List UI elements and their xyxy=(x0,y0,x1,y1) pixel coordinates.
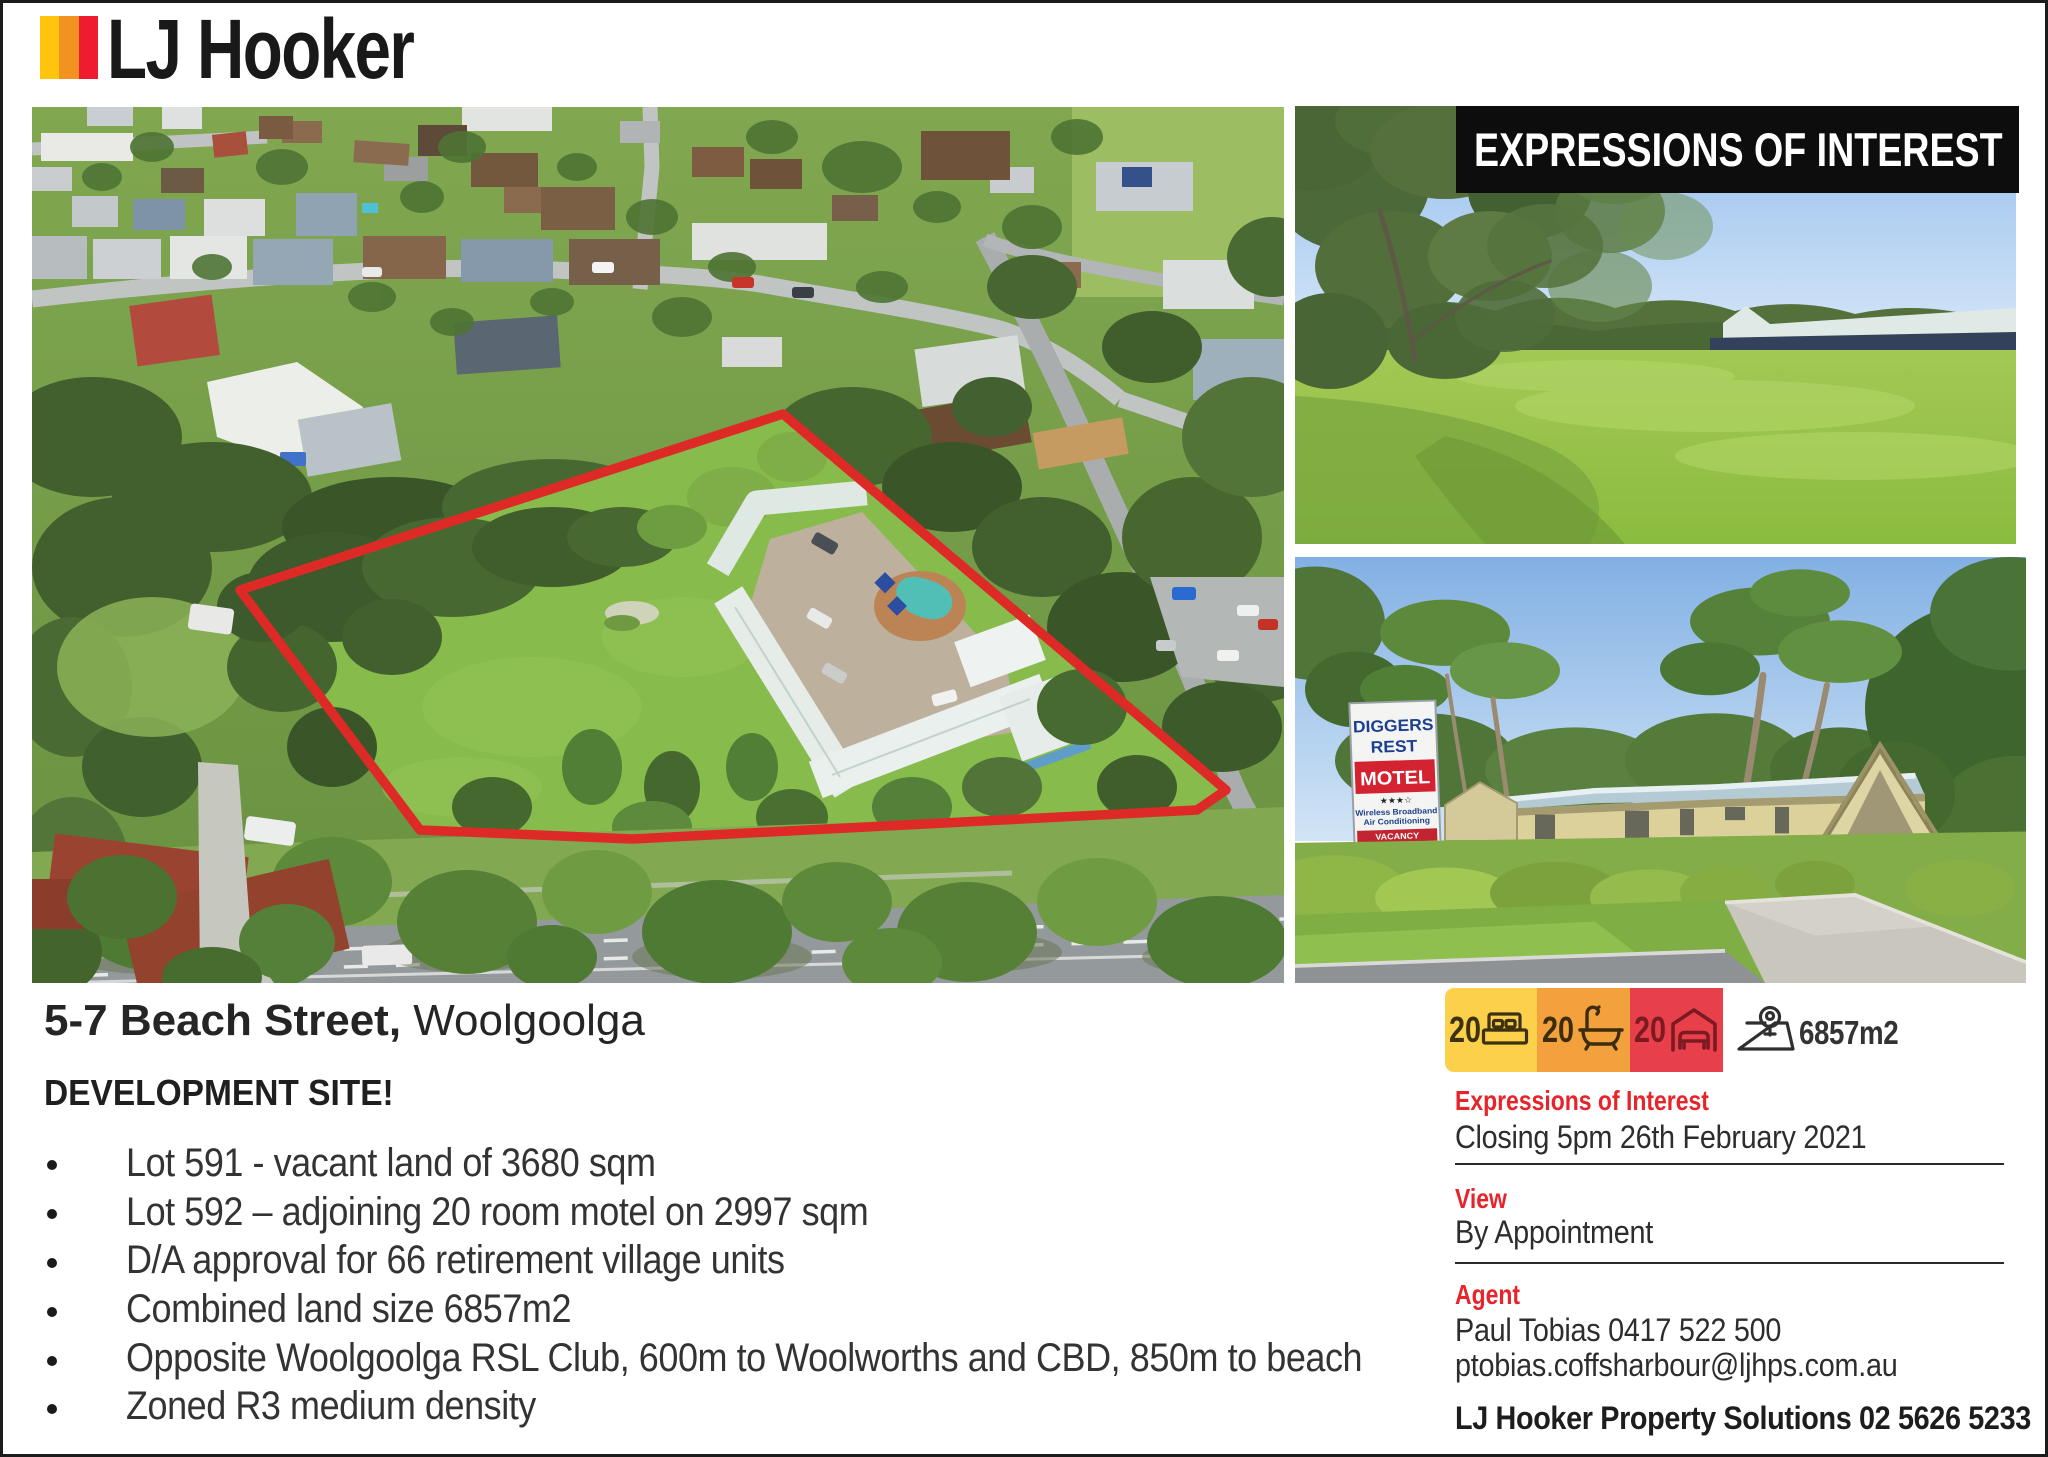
svg-text:DIGGERS: DIGGERS xyxy=(1353,715,1434,736)
svg-text:★★★☆: ★★★☆ xyxy=(1380,795,1413,806)
svg-text:REST: REST xyxy=(1370,737,1418,757)
svg-text:MOTEL: MOTEL xyxy=(1360,767,1431,791)
svg-text:VACANCY: VACANCY xyxy=(1375,831,1419,842)
